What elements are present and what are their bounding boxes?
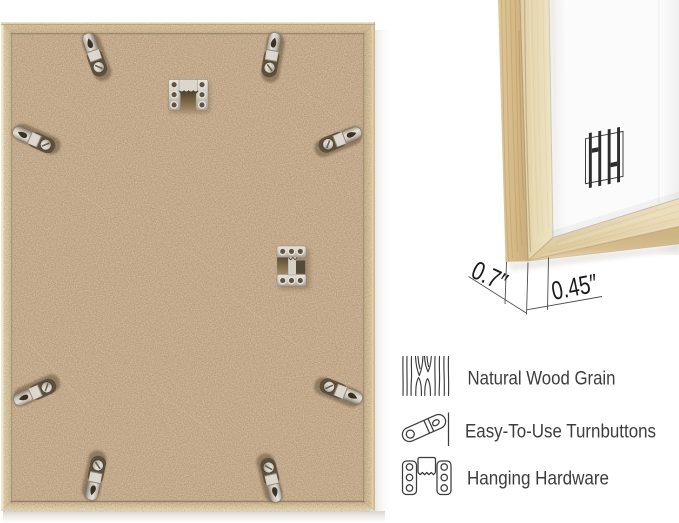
svg-text:Hanging Hardware: Hanging Hardware bbox=[467, 468, 609, 490]
svg-text:Easy-To-Use Turnbuttons: Easy-To-Use Turnbuttons bbox=[465, 421, 656, 443]
svg-text:Natural Wood Grain: Natural Wood Grain bbox=[468, 368, 616, 390]
